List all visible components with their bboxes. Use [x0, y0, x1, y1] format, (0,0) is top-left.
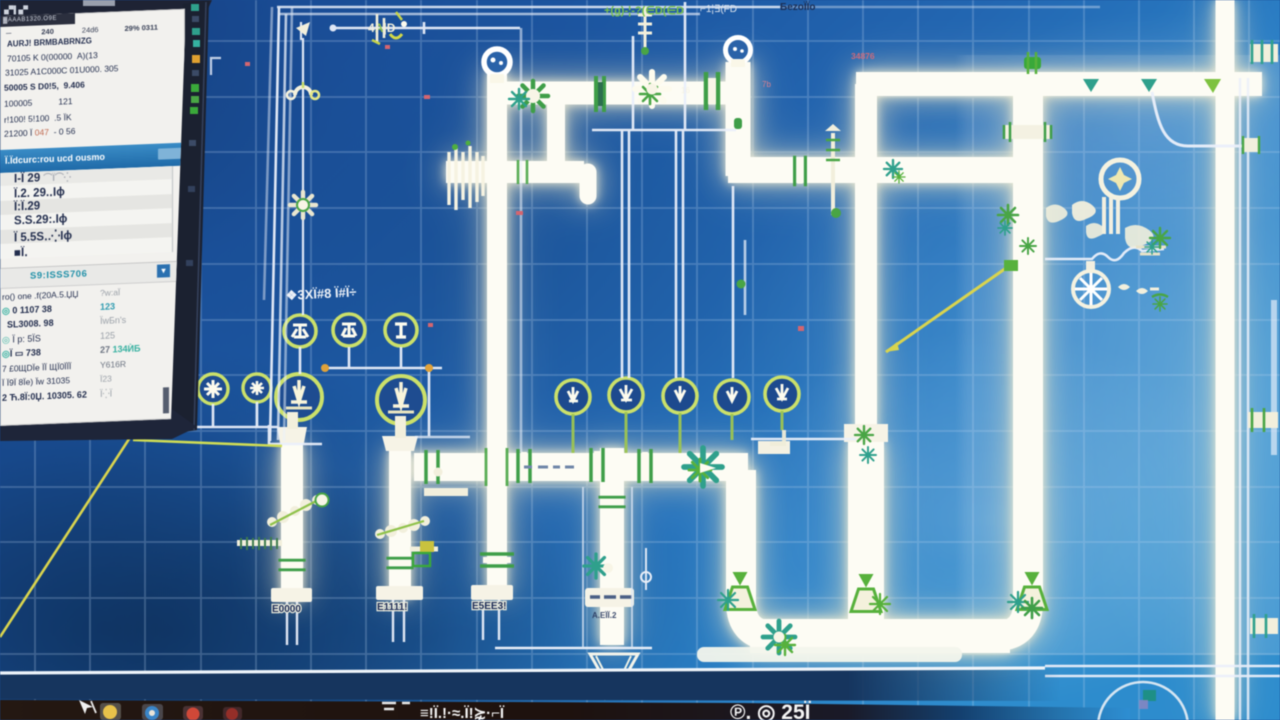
svg-text:4A|D: 4A|D	[368, 21, 396, 35]
svg-text:БezoЇЇo: БezoЇЇo	[780, 0, 815, 13]
svg-text:▄▀▌▄▀: ▄▀▌▄▀	[4, 5, 28, 15]
svg-text:E0000: E0000	[272, 604, 301, 615]
svg-text:E5EE3!: E5EE3!	[472, 601, 506, 612]
svg-text:⌐1¦∃(FD: ⌐1¦∃(FD	[700, 4, 737, 15]
svg-text:≡!Ї.!·≈.Ї!⋩·⌐Ї: ≡!Ї.!·≈.Ї!⋩·⌐Ї	[420, 705, 505, 720]
svg-text:+(g)-¦-?(∈D(∈D: +(g)-¦-?(∈D(∈D	[604, 5, 684, 17]
svg-text:7b: 7b	[762, 80, 771, 89]
svg-text:A.EЇЇ.2: A.EЇЇ.2	[592, 611, 617, 620]
svg-text:℗. ◎ 25Ї: ℗. ◎ 25Ї	[730, 701, 812, 720]
svg-text:34876: 34876	[851, 51, 875, 61]
svg-text:E1111!: E1111!	[377, 602, 408, 613]
svg-text:16: 16	[681, 86, 690, 95]
